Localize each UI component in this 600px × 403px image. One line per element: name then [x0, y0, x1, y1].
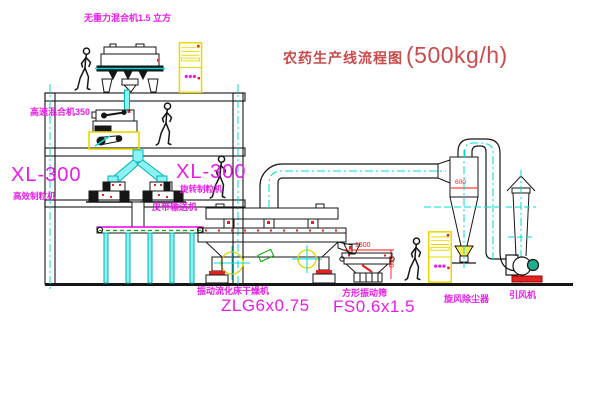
flow-diagram: 农药生产线流程图 (500kg/h) 无重力混合机1.5 立方 高速混合机350… [0, 0, 600, 403]
control-cabinet-icon [179, 43, 201, 92]
high-speed-mixer [89, 110, 139, 149]
induced-draft-fan [506, 255, 542, 282]
dryer-leg [206, 257, 228, 283]
crosshair-target-icon [292, 245, 322, 273]
label-sieve-model: FS0.6x1.5 [333, 298, 415, 315]
label-dryer-model: ZLG6x0.75 [221, 297, 310, 314]
label-belt-conveyor: 皮带输送机 [152, 203, 197, 212]
discharge-chute [132, 202, 144, 228]
label-granulator-right-model: XL-300 [176, 162, 247, 182]
worker-icon [75, 48, 90, 90]
label-granulator-left-model: XL-300 [11, 165, 82, 185]
gravity-free-mixer [95, 44, 165, 112]
worker-icon [405, 238, 420, 280]
mixer-funnels [109, 71, 147, 79]
label-gravity-mixer: 无重力混合机1.5 立方 [84, 14, 171, 23]
label-cyclone: 旋风除尘器 [444, 295, 489, 304]
fluid-bed-dryer [198, 204, 346, 283]
label-high-speed-mixer: 高速混合机350 [30, 108, 90, 117]
name-plate-icon [258, 249, 274, 261]
conveyor-legs [104, 233, 194, 283]
flange-bolts [205, 230, 337, 232]
label-fan: 引风机 [509, 291, 536, 300]
title-capacity: (500kg/h) [406, 44, 508, 67]
control-cabinet-icon [429, 232, 451, 282]
dimension-sieve-height: 500 [387, 256, 394, 268]
building-frame [45, 84, 573, 291]
dimension-sieve-length: 1500 [355, 242, 371, 249]
belt-conveyor [97, 227, 203, 283]
diagram-title: 农药生产线流程图 (500kg/h) [283, 44, 508, 67]
exhaust-duct [260, 164, 446, 208]
worker-icon [156, 103, 171, 145]
label-dryer-name: 振动流化床干燥机 [197, 287, 269, 296]
label-granulator-left-name: 高效制粒机 [13, 192, 56, 201]
label-granulator-right-name: 旋转制粒机 [180, 185, 223, 194]
granulator-left [86, 176, 132, 202]
title-text: 农药生产线流程图 [283, 51, 403, 65]
dimension-cyclone-diameter: 600 [455, 180, 466, 187]
